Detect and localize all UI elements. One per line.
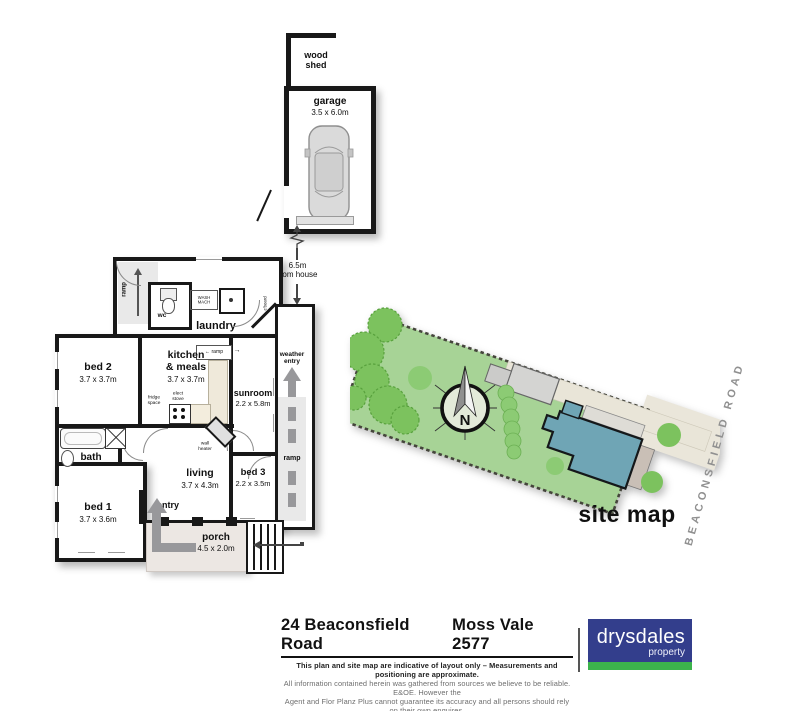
fridge-line1: fridge [148,395,160,400]
bed2-name: bed 2 [84,361,111,373]
tree [408,366,432,390]
woodshed-label-line2: shed [305,60,326,70]
steps-arrow-dot [300,542,304,546]
bed3-dim: 2.2 x 3.5m [235,479,270,488]
logo-navy-panel: drysdales property [588,619,692,662]
bed1-window-line [78,552,95,553]
entry-arrow-horizontal [152,543,196,552]
car-icon [304,123,354,223]
shrub [657,423,681,447]
kitchen-label: kitchen & meals 3.7 x 3.7m [148,350,224,385]
break-symbol-icon [288,230,306,248]
arrow-right-glyph: → [234,347,241,354]
porch-dim: 4.5 x 2.0m [197,544,234,553]
woodshed-label: wood shed [290,50,342,70]
step-line [260,524,262,570]
suburb-postcode: Moss Vale 2577 [452,616,573,654]
bed3-window-line [240,518,255,519]
porch-post [226,517,237,526]
kitchen-name1: kitchen [168,349,205,361]
porch-post [192,517,203,526]
bed2-dim: 3.7 x 3.7m [79,375,116,384]
shrub [546,457,564,475]
cupboard-label-text: c'board [264,296,268,310]
distance-caption: from house [277,270,317,279]
steps-arrow-line [258,544,302,546]
side-ramp-strip: weather entry ramp [275,304,315,530]
garage-window-gap [361,122,366,139]
garage-room: garage 3.5 x 6.0m [284,86,376,234]
disclaimer-line2: All information contained herein was gat… [281,679,573,697]
agency-logo: drysdales property [588,619,692,671]
street-address: 24 Beaconsfield Road [281,616,452,654]
sunroom-dim: 2.2 x 5.8m [235,399,270,408]
title-rule [281,656,573,658]
wall-living-left [139,490,143,524]
wall-bed2-kitchen [138,338,142,428]
address-row: 24 Beaconsfield Road Moss Vale 2577 [281,616,573,654]
porch-name: porch [202,532,230,543]
weather-entry-label: weather entry [276,351,308,366]
disclaimer-line3: Agent and Flor Planz Plus cannot guarant… [281,697,573,711]
bed3-name: bed 3 [241,467,266,478]
wc-label-text: wc [158,312,167,319]
distance-line [296,248,298,260]
steps [246,520,284,574]
stove-label: elect stove [166,391,190,402]
site-map-title-text: site map [578,501,675,527]
bed2-window-line [57,390,58,407]
wc-label: wc [151,312,173,319]
woodshed-top-wall [286,33,336,38]
fridge-line2: space [148,401,161,406]
bed1-dim: 3.7 x 3.6m [79,515,116,524]
bath-label: bath [70,452,112,463]
kitchen-name2: & meals [166,361,206,373]
bath-name: bath [80,452,101,463]
weather-line1: weather [280,351,305,358]
wall-heater-label: wall heater [193,441,217,452]
living-label: living 3.7 x 4.3m [158,468,242,492]
ramp-dash [288,471,296,485]
washing-machine-label: WASH MACH [195,296,213,305]
step-line [267,524,269,570]
bathtub-inner [64,432,102,445]
side-ramp-text: ramp [283,455,300,462]
weather-line2: entry [284,358,300,365]
sunroom-window-line [273,414,274,432]
burner-icon [173,415,177,419]
wallheater-line2: heater [198,447,212,452]
sunroom-label: sunroom 2.2 x 5.8m [231,388,275,408]
washing-machine: WASH MACH [190,290,218,310]
weather-entry-arrow-icon [283,367,301,381]
bathtub-icon [60,428,106,449]
garage-window-gap [361,168,366,185]
wallheater-line1: wall [201,441,209,446]
laundry-window-line [196,259,222,260]
woodshed-label-line1: wood [304,50,328,60]
kitchen-counter-corner [190,404,211,424]
footer-divider [578,628,580,672]
logo-wordmark: drysdales [597,626,685,649]
side-ramp-label: ramp [278,455,306,463]
bed1-label: bed 1 3.7 x 3.6m [58,502,138,526]
garage-door-gap [284,186,289,218]
washmach-line2: MACH [198,301,210,305]
floorplan-page: wood shed garage 3.5 x 6.0m 6.5m from ho… [0,0,800,711]
laundry-label-text: laundry [196,320,236,332]
weather-entry-arrow-shaft [288,381,296,397]
fridge-space-label: fridge space [143,395,165,406]
compass-n-label: N [460,412,471,429]
ramp-dash [288,407,296,421]
burner-icon [181,415,185,419]
burner-icon [173,408,177,412]
garage-roller-door [296,216,354,225]
distance-value: 6.5m [289,261,307,270]
linen-cupboard-icon [105,428,126,449]
distance-arrow-up-icon [293,225,301,232]
bed2-label: bed 2 3.7 x 3.7m [58,362,138,386]
living-name: living [186,467,213,479]
logo-green-bar [588,662,692,670]
stove-line2: stove [172,397,183,402]
washmach-line1: WASH [198,296,210,300]
ramp-dash [288,493,296,507]
burner-icon [181,408,185,412]
kitchen-dim: 3.7 x 3.7m [167,375,204,384]
cupboard-label: c'board [264,293,269,313]
sunroom-name: sunroom [234,388,273,398]
stove-icon [169,404,191,424]
garage-label: garage 3.5 x 6.0m [289,96,371,118]
garage-label-text: garage [314,96,347,107]
steps-arrow-icon [253,541,260,549]
garage-dim: 3.5 x 6.0m [311,108,348,117]
bed1-window-line [108,552,125,553]
garage-door-leaf [256,190,272,222]
disclaimer-line1: This plan and site map are indicative of… [281,661,573,679]
living-dim: 3.7 x 4.3m [181,481,218,490]
porch-label: porch 4.5 x 2.0m [188,532,244,554]
site-map-title: site map [572,502,682,528]
bed1-window-line [57,486,58,502]
shrub [641,471,663,493]
ramp-dash [288,429,296,443]
step-line [274,524,276,570]
arrow-right-icon: → [231,347,243,355]
title-block: 24 Beaconsfield Road Moss Vale 2577 This… [281,616,573,711]
logo-tagline: property [648,647,685,658]
rear-ramp-label-text: ramp [122,282,128,297]
bed3-label: bed 3 2.2 x 3.5m [232,468,274,489]
entry-arrow-head-icon [147,498,167,513]
bed1-name: bed 1 [84,501,111,513]
stove-line1: elect [173,391,183,396]
